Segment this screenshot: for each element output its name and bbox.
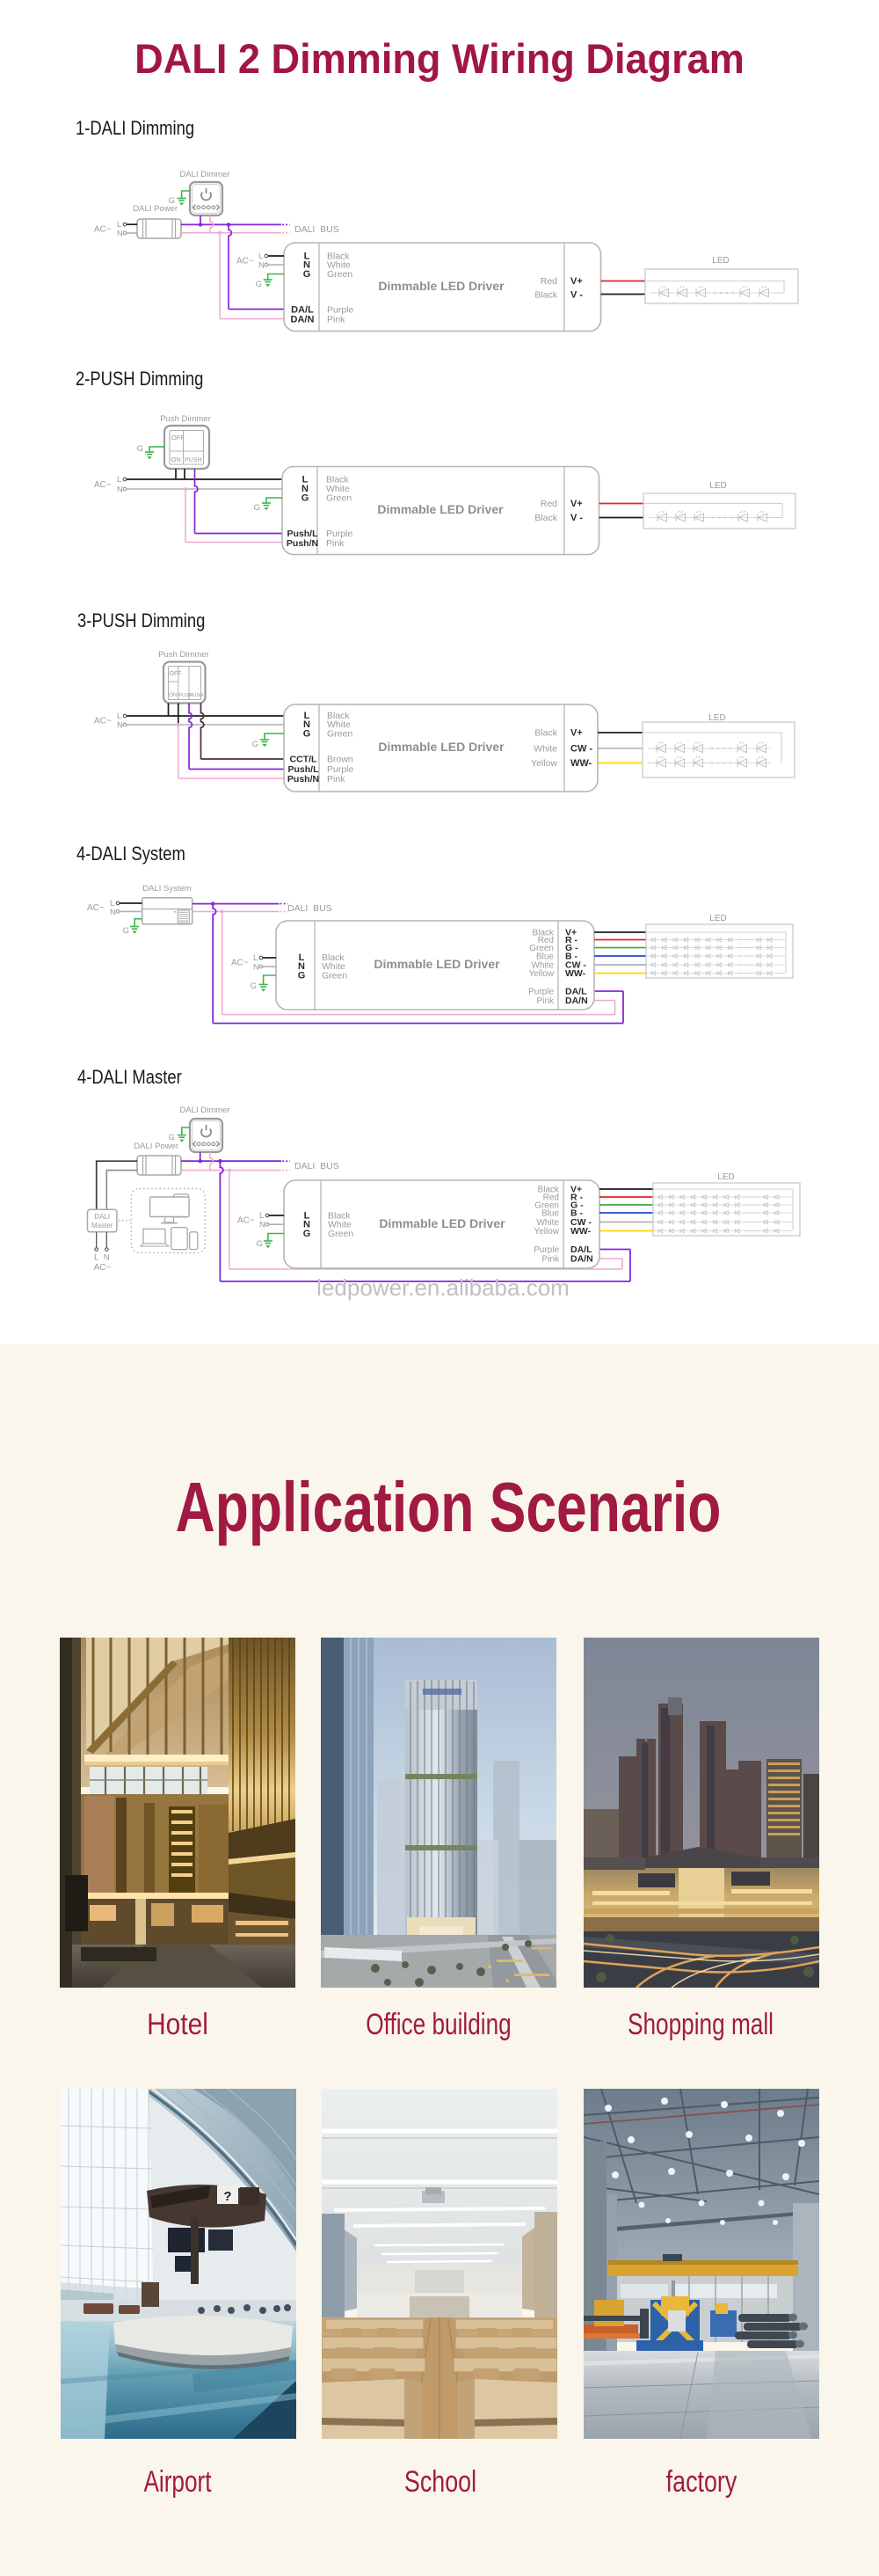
svg-text:Pink: Pink — [326, 538, 345, 549]
svg-text:Dimmable LED Driver: Dimmable LED Driver — [378, 279, 505, 293]
svg-text:V+: V+ — [570, 276, 583, 287]
svg-text:V -: V - — [570, 513, 583, 523]
svg-text:N: N — [258, 261, 265, 271]
svg-text:Pink: Pink — [542, 1255, 560, 1265]
svg-text:Pink: Pink — [537, 996, 555, 1006]
svg-text:Green: Green — [328, 1229, 353, 1239]
svg-text:G: G — [251, 982, 257, 991]
svg-text:AC~: AC~ — [236, 257, 254, 266]
svg-text:Black: Black — [534, 290, 557, 301]
svg-text:Blue: Blue — [541, 1209, 559, 1219]
svg-text:V+: V+ — [570, 499, 583, 509]
svg-text:Red: Red — [541, 499, 557, 509]
svg-text:ON: ON — [171, 456, 181, 463]
svg-text:LED: LED — [712, 256, 729, 266]
svg-text:AC~: AC~ — [237, 1216, 255, 1226]
svg-text:L: L — [117, 475, 121, 485]
svg-text:N: N — [117, 230, 123, 239]
svg-text:DALI: DALI — [94, 1213, 110, 1221]
svg-text:L: L — [253, 953, 258, 963]
svg-text:G: G — [257, 1239, 263, 1249]
svg-text:Dimmable LED Driver: Dimmable LED Driver — [374, 957, 500, 971]
svg-text:OFF: OFF — [170, 671, 182, 677]
svg-text:N: N — [117, 485, 123, 495]
svg-text:Brown: Brown — [327, 755, 353, 765]
svg-text:2-PUSH Dimming: 2-PUSH Dimming — [76, 369, 203, 390]
svg-text:V -: V - — [570, 290, 583, 301]
svg-text:Green: Green — [326, 493, 352, 504]
svg-text:Black: Black — [534, 728, 557, 739]
svg-text:Push Dimmer: Push Dimmer — [158, 650, 209, 660]
svg-text:DALI BUS: DALI BUS — [294, 224, 339, 235]
svg-text:DALI Power: DALI Power — [133, 204, 178, 214]
svg-text:Dimmable LED Driver: Dimmable LED Driver — [378, 740, 505, 754]
svg-text:DALI 2 Dimming Wiring Diagram: DALI 2 Dimming Wiring Diagram — [134, 35, 745, 82]
svg-text:LED: LED — [709, 481, 726, 491]
svg-text:AC~: AC~ — [231, 959, 249, 968]
svg-text:Dimmable LED Driver: Dimmable LED Driver — [379, 1216, 505, 1230]
svg-text:L: L — [259, 1211, 264, 1221]
svg-text:DALI Power: DALI Power — [134, 1142, 178, 1151]
svg-text:G: G — [137, 444, 143, 454]
svg-text:N: N — [117, 721, 123, 731]
svg-text:Push/N: Push/N — [287, 774, 319, 784]
svg-text:G: G — [298, 971, 306, 982]
svg-text:DALI Dimmer: DALI Dimmer — [179, 1106, 229, 1115]
svg-text:DA/N: DA/N — [570, 1254, 593, 1265]
svg-text:AC~: AC~ — [94, 717, 112, 726]
svg-text:PUSH: PUSH — [189, 693, 203, 698]
svg-text:G: G — [256, 280, 262, 289]
svg-text:WW-: WW- — [570, 1226, 592, 1237]
svg-text:Yellow: Yellow — [534, 1227, 559, 1237]
svg-text:Push/N: Push/N — [287, 538, 318, 549]
svg-text:Purple: Purple — [528, 988, 554, 997]
svg-text:G: G — [123, 926, 129, 936]
svg-text:N: N — [259, 1221, 265, 1230]
svg-text:DA/N: DA/N — [565, 996, 588, 1006]
svg-text:N: N — [104, 1253, 110, 1263]
svg-text:G: G — [303, 1229, 311, 1239]
svg-text:LED: LED — [708, 713, 725, 723]
svg-text:Yellow: Yellow — [531, 758, 557, 769]
svg-text:AC~: AC~ — [94, 225, 112, 235]
svg-text:CCT/L: CCT/L — [290, 755, 317, 765]
svg-text:Push Dimmer: Push Dimmer — [160, 414, 211, 424]
svg-text:PUSH: PUSH — [185, 457, 201, 463]
svg-text:ON: ON — [169, 692, 178, 698]
svg-text:4-DALI System: 4-DALI System — [76, 844, 185, 865]
svg-text:L: L — [258, 252, 263, 261]
svg-text:L: L — [117, 712, 121, 721]
svg-text:ledpower.en.alibaba.com: ledpower.en.alibaba.com — [316, 1274, 570, 1301]
svg-text:Pink: Pink — [327, 774, 345, 784]
svg-text:AC~: AC~ — [87, 903, 105, 913]
svg-text:Purple: Purple — [534, 1245, 559, 1255]
svg-text:Green: Green — [322, 971, 347, 982]
svg-text:White: White — [534, 744, 557, 755]
svg-text:LED: LED — [717, 1172, 734, 1182]
svg-text:G: G — [254, 503, 260, 513]
svg-text:Green: Green — [327, 729, 352, 740]
svg-text:4-DALI Master: 4-DALI Master — [77, 1068, 182, 1089]
svg-text:DA/N: DA/N — [291, 315, 315, 325]
svg-text:Dimmable LED Driver: Dimmable LED Driver — [377, 502, 504, 516]
svg-text:AC~: AC~ — [94, 1263, 112, 1273]
svg-text:G: G — [303, 269, 311, 280]
svg-text:OFF: OFF — [171, 434, 185, 441]
svg-text:?: ? — [223, 2189, 231, 2204]
svg-text:DALI System: DALI System — [142, 884, 192, 894]
svg-text:G: G — [252, 740, 258, 749]
svg-text:Black: Black — [534, 513, 557, 523]
svg-text:Pink: Pink — [327, 315, 345, 325]
svg-text:G: G — [303, 729, 311, 740]
svg-text:WW-: WW- — [570, 758, 592, 769]
svg-text:V+: V+ — [570, 728, 583, 739]
svg-text:DALI Dimmer: DALI Dimmer — [179, 170, 229, 179]
svg-text:Master: Master — [91, 1222, 113, 1230]
svg-text:DALI BUS: DALI BUS — [287, 903, 332, 914]
svg-text:N: N — [110, 908, 116, 917]
svg-text:L: L — [94, 1253, 98, 1263]
svg-text:Yellow: Yellow — [528, 969, 554, 979]
svg-text:DALI BUS: DALI BUS — [294, 1161, 339, 1171]
svg-text:Green: Green — [327, 269, 352, 280]
svg-text:WW-: WW- — [565, 968, 586, 979]
svg-text:AC~: AC~ — [94, 480, 112, 490]
svg-text:CW -: CW - — [570, 744, 592, 755]
svg-text:LED: LED — [709, 914, 726, 923]
svg-text:G: G — [301, 493, 309, 504]
svg-text:1-DALI Dimming: 1-DALI Dimming — [76, 119, 194, 140]
svg-text:3-PUSH Dimming: 3-PUSH Dimming — [77, 611, 205, 632]
svg-text:Red: Red — [541, 276, 557, 287]
svg-text:N: N — [253, 963, 259, 973]
